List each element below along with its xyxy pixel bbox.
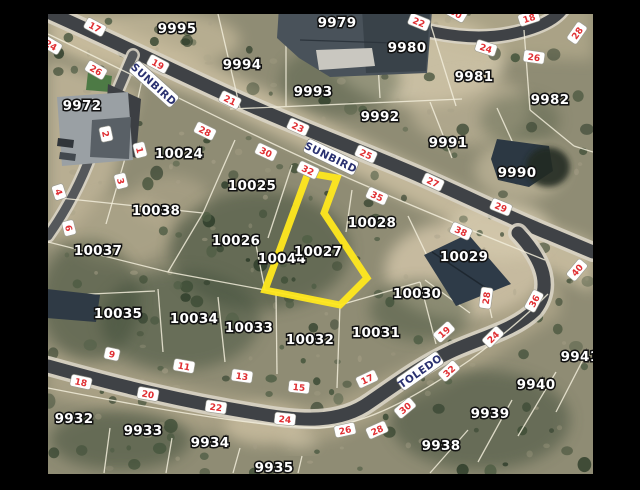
lot-label-10025: 10025 <box>228 178 276 194</box>
screenshot-frame: 9995999499799980998199829993999299919990… <box>0 0 640 490</box>
lot-label-9935: 9935 <box>255 460 294 474</box>
lot-label-9972: 9972 <box>63 98 102 114</box>
lot-label-9994: 9994 <box>223 57 262 73</box>
svg-text:15: 15 <box>292 383 306 394</box>
lot-label-10038: 10038 <box>132 203 180 219</box>
lot-label-10033: 10033 <box>225 320 273 336</box>
lot-label-9934: 9934 <box>191 435 230 451</box>
lot-label-10026: 10026 <box>212 233 260 249</box>
lot-label-9939: 9939 <box>471 406 510 422</box>
lot-label-10031: 10031 <box>352 325 400 341</box>
svg-text:28: 28 <box>482 291 494 305</box>
lot-label-10032: 10032 <box>286 332 334 348</box>
lot-label-9990: 9990 <box>498 165 537 181</box>
lot-label-9940: 9940 <box>517 377 556 393</box>
lot-label-9941: 9941 <box>561 349 593 365</box>
lot-label-10028: 10028 <box>348 215 396 231</box>
lot-label-9979: 9979 <box>318 15 357 31</box>
road-number-pill: 15 <box>288 380 310 395</box>
lot-label-9982: 9982 <box>531 92 570 108</box>
lot-label-10030: 10030 <box>393 286 441 302</box>
lot-label-9991: 9991 <box>429 135 468 151</box>
parcel-map[interactable]: 9995999499799980998199829993999299919990… <box>48 14 593 474</box>
lot-label-10034: 10034 <box>170 311 218 327</box>
svg-text:13: 13 <box>235 372 249 384</box>
svg-text:22: 22 <box>209 403 223 415</box>
svg-text:24: 24 <box>278 415 292 426</box>
lot-label-9993: 9993 <box>294 84 333 100</box>
lot-label-9980: 9980 <box>388 40 427 56</box>
lot-label-9933: 9933 <box>124 423 163 439</box>
lot-label-9992: 9992 <box>361 109 400 125</box>
lot-label-9932: 9932 <box>55 411 94 427</box>
lot-label-9981: 9981 <box>455 69 494 85</box>
svg-text:26: 26 <box>527 53 541 65</box>
road-number-pill: 24 <box>274 412 296 427</box>
lot-label-10029: 10029 <box>440 249 488 265</box>
lot-label-9995: 9995 <box>158 21 197 37</box>
lot-label-10035: 10035 <box>94 306 142 322</box>
lot-label-9938: 9938 <box>422 438 461 454</box>
lot-label-10024: 10024 <box>155 146 203 162</box>
lot-label-10037: 10037 <box>74 243 122 259</box>
lot-label-10027: 10027 <box>294 244 342 260</box>
aerial-parcel-overlay: 9995999499799980998199829993999299919990… <box>48 14 593 474</box>
